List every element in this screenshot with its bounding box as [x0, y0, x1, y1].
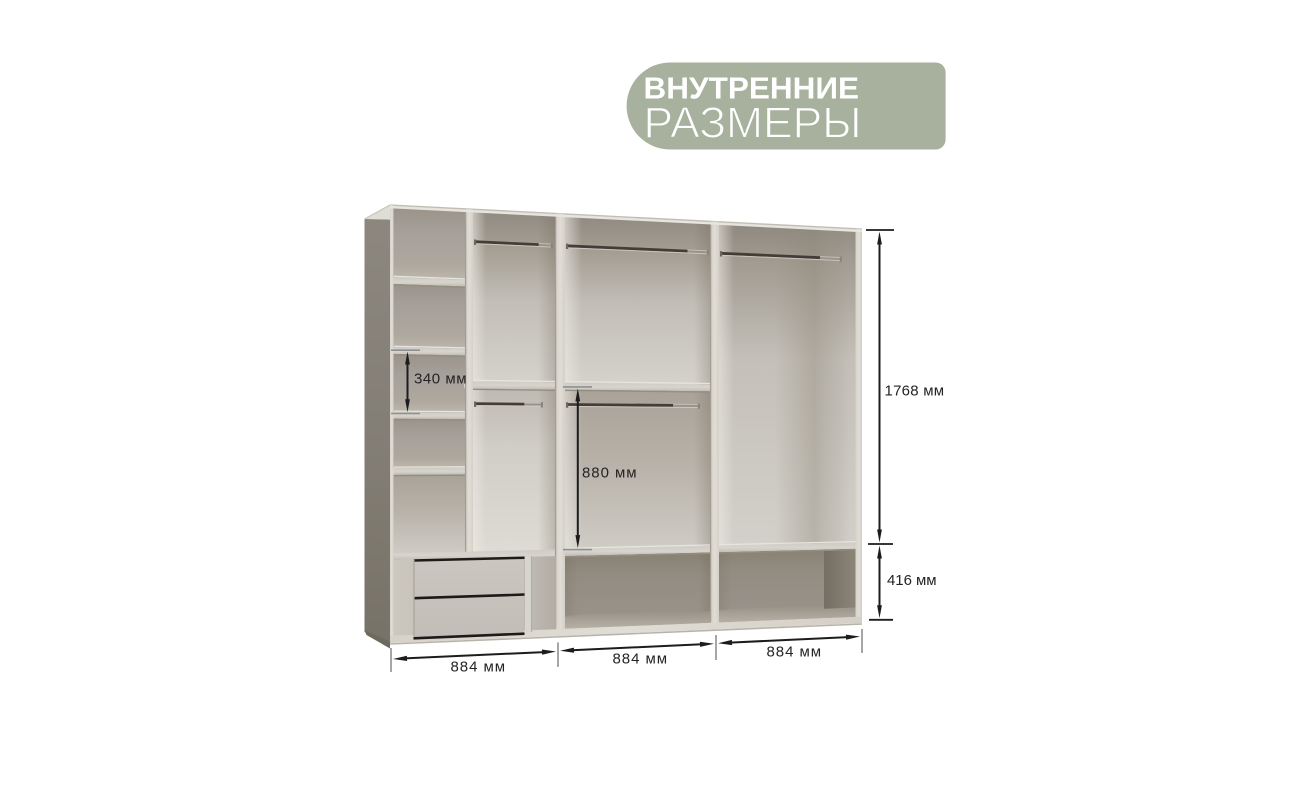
svg-text:884 мм: 884 мм — [613, 651, 668, 668]
svg-text:880 мм: 880 мм — [582, 465, 637, 482]
svg-text:416 мм: 416 мм — [887, 572, 937, 589]
svg-text:340 мм: 340 мм — [414, 371, 467, 388]
svg-text:1768 мм: 1768 мм — [885, 382, 945, 399]
svg-text:884 мм: 884 мм — [451, 659, 506, 676]
svg-text:РАЗМЕРЫ: РАЗМЕРЫ — [644, 100, 862, 148]
svg-text:884 мм: 884 мм — [767, 644, 822, 661]
